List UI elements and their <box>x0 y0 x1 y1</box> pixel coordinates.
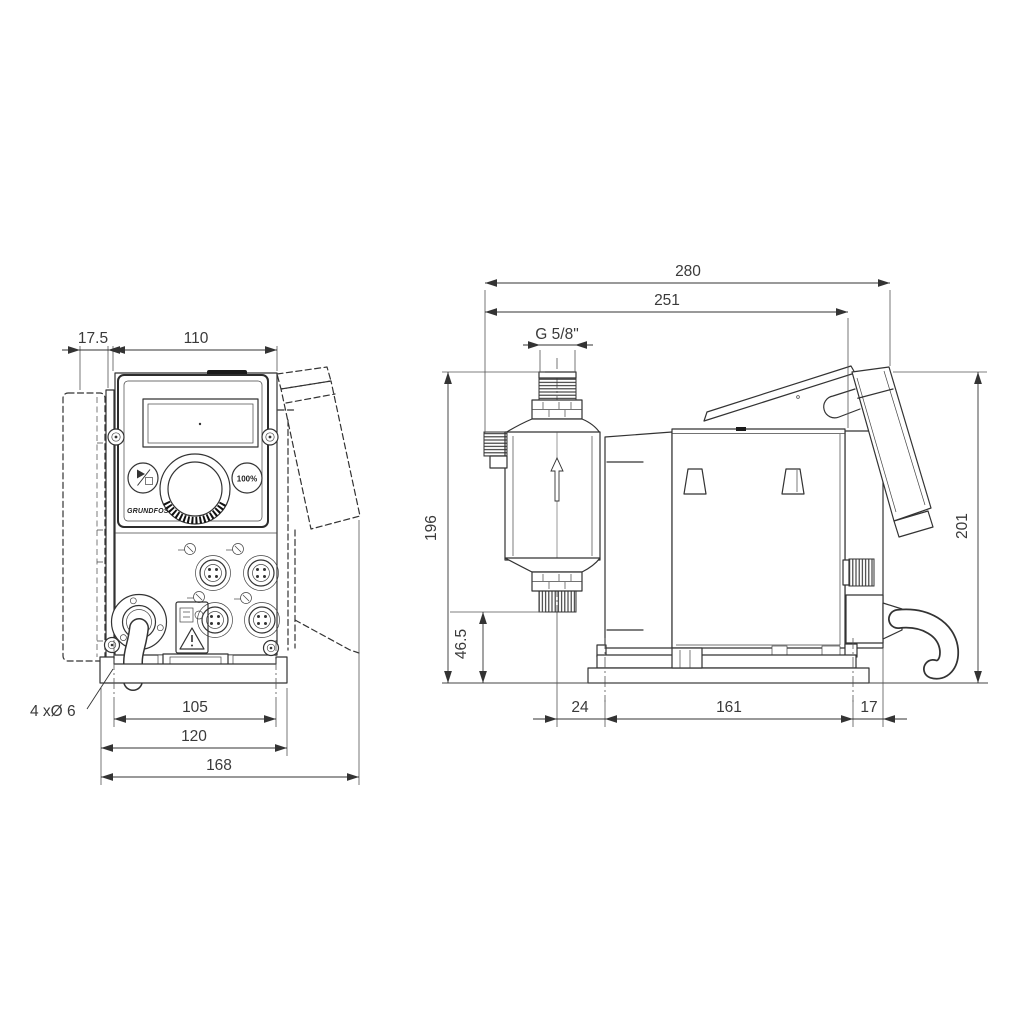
dim-overall-height: 201 <box>954 513 971 539</box>
rear-cable-gland <box>843 559 902 643</box>
control-panel: 100% GRUNDFOS <box>108 370 278 527</box>
dosing-head <box>484 358 600 616</box>
dim-overall-width: 168 <box>206 757 232 774</box>
dim-height-to-connection: 196 <box>423 515 440 541</box>
click-wheel[interactable] <box>160 454 230 524</box>
top-thread <box>539 375 576 400</box>
dim-mounting-holes-note: 4 xØ 6 <box>30 703 76 720</box>
top-union-nut <box>532 400 582 419</box>
panel-handle-hook <box>824 389 860 418</box>
dim-connection-thread: G 5/8" <box>535 326 578 343</box>
head-cylinder <box>505 432 600 560</box>
dim-depth-to-housing-rear: 251 <box>654 292 680 309</box>
rear-nipple-thread <box>849 559 874 586</box>
bottom-shoulder <box>505 558 600 572</box>
dim-head-to-front-hole: 24 <box>571 699 589 716</box>
technical-drawing-canvas: 100% GRUNDFOS <box>0 0 1024 1024</box>
top-thread-cap <box>539 372 576 378</box>
foot-clamp <box>672 648 702 668</box>
dim-overall-depth: 280 <box>675 263 701 280</box>
hinge-screw-right <box>262 429 278 445</box>
display-dot <box>199 423 201 425</box>
vent-valve-knob[interactable] <box>484 432 507 468</box>
tilted-panel-dashed-outline <box>277 367 360 653</box>
dimensional-drawing: 100% GRUNDFOS <box>0 0 1024 1024</box>
dim-bracket-offset: 17.5 <box>78 330 108 347</box>
top-notch <box>736 427 746 431</box>
top-shoulder <box>505 419 600 433</box>
power-cable-side <box>898 619 949 670</box>
dim-rear-hole-to-rear: 17 <box>860 699 877 716</box>
full-capacity-button-label: 100% <box>237 475 257 484</box>
start-stop-button[interactable] <box>128 463 158 493</box>
full-capacity-button[interactable]: 100% <box>232 463 262 493</box>
dim-valve-bottom-height: 46.5 <box>453 629 470 659</box>
front-view: 100% GRUNDFOS <box>30 330 360 785</box>
dim-hole-spacing-front: 105 <box>182 699 208 716</box>
bottom-thread <box>539 591 576 612</box>
side-view: 280 251 G 5/8" 196 46.5 201 24 161 <box>423 263 988 727</box>
pump-body-side <box>605 427 883 648</box>
grundfos-logo: GRUNDFOS <box>127 508 169 515</box>
hinge-screw-left <box>108 429 124 445</box>
enclosure <box>672 429 845 648</box>
dim-hole-spacing-side: 161 <box>716 699 742 716</box>
corner-screw-left <box>105 638 120 653</box>
motor-section <box>605 432 672 648</box>
bottom-union-nut <box>532 572 582 591</box>
dim-housing-width: 110 <box>184 330 209 347</box>
dim-base-plate-width: 120 <box>181 728 207 745</box>
